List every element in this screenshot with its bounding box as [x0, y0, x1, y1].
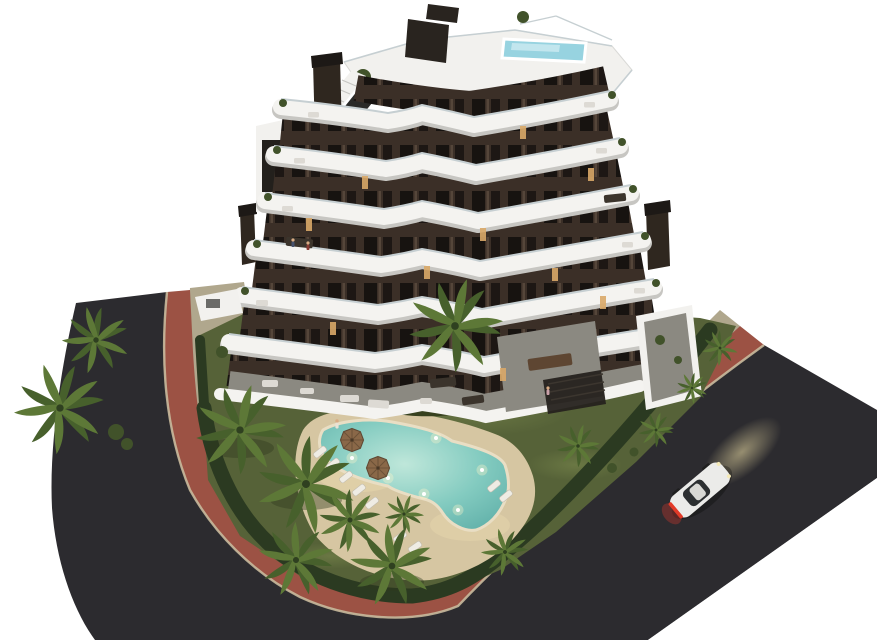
parasol [366, 456, 389, 479]
person [335, 419, 338, 428]
terrace-plant [674, 356, 682, 364]
pool-light [431, 433, 442, 444]
shrub [108, 424, 124, 440]
vent-grille [206, 299, 220, 308]
render-canvas [0, 0, 877, 640]
scene [0, 0, 877, 640]
person [306, 241, 309, 250]
pool-light [419, 489, 430, 500]
terrace-sofa [622, 242, 633, 248]
parasol [340, 428, 363, 451]
shrub [607, 463, 617, 473]
pool-light [347, 453, 358, 464]
roof-plant [517, 11, 529, 23]
pool-light [477, 465, 488, 476]
terrace-sofa [308, 112, 319, 118]
terrace-plant [655, 335, 665, 345]
shrub [121, 438, 133, 450]
patio-sofa [420, 398, 432, 404]
person [546, 386, 549, 395]
terrace-sofa [256, 300, 268, 306]
left-hedge [200, 340, 204, 404]
terrace-sofa [282, 206, 293, 212]
roof-privacy-screen [405, 19, 449, 63]
shrub [216, 346, 228, 358]
terrace-sofa [596, 148, 607, 154]
terrace-sofa [584, 102, 595, 108]
patio-dining [340, 395, 359, 402]
patio-sofa [300, 388, 314, 394]
terrace-sofa [634, 288, 645, 294]
person [291, 238, 294, 247]
patio-dining [368, 399, 390, 408]
shrub [630, 448, 639, 457]
pool-light [453, 505, 464, 516]
patio-sofa [262, 380, 278, 387]
terrace-sofa [294, 158, 305, 164]
